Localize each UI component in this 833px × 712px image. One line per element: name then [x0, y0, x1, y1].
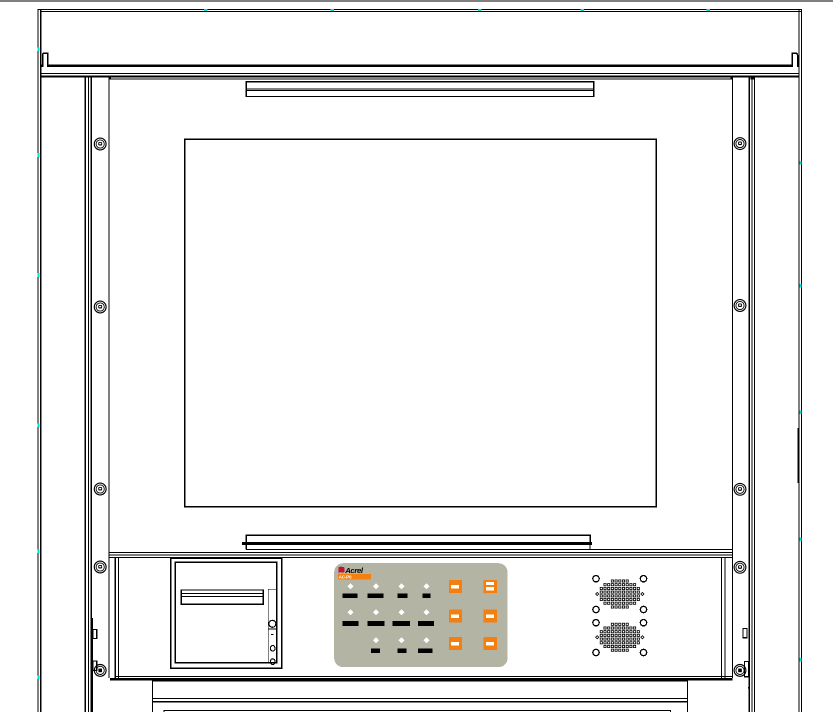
svg-text:AC-P0: AC-P0 [339, 575, 352, 580]
